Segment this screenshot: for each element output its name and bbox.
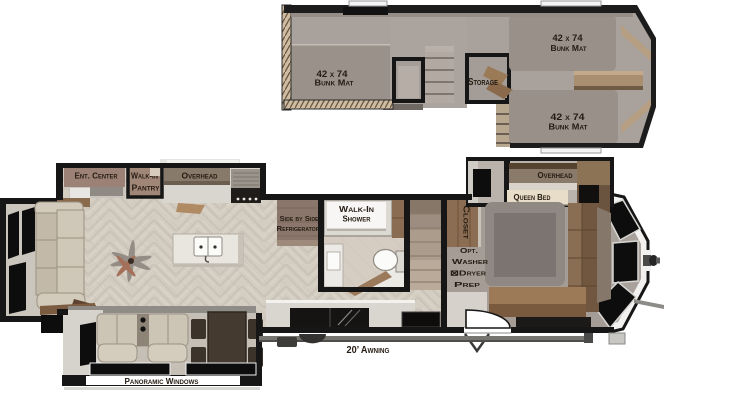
svg-text:Shower: Shower [343, 215, 372, 224]
svg-text:20’ Awning: 20’ Awning [347, 345, 390, 356]
svg-text:Prep: Prep [454, 280, 481, 289]
svg-text:Bunk Mat: Bunk Mat [315, 78, 354, 88]
svg-text:Storage: Storage [468, 77, 498, 88]
svg-text:Overhead: Overhead [182, 171, 219, 181]
svg-text:Ent. Center: Ent. Center [75, 171, 119, 181]
svg-text:Overhead: Overhead [538, 171, 574, 180]
svg-text:Opt.: Opt. [460, 246, 478, 255]
svg-text:⊠Dryer: ⊠Dryer [450, 269, 487, 278]
svg-text:Bunk Mat: Bunk Mat [551, 43, 587, 53]
svg-text:42 x 74: 42 x 74 [551, 112, 585, 122]
svg-text:Panoramic Windows: Panoramic Windows [125, 377, 199, 386]
svg-text:Closet: Closet [462, 205, 472, 239]
svg-text:Washer: Washer [452, 257, 489, 266]
svg-text:Side by Side: Side by Side [280, 214, 320, 223]
svg-text:Queen Bed: Queen Bed [514, 192, 552, 202]
svg-text:Pantry: Pantry [132, 184, 160, 193]
svg-text:42 x 74: 42 x 74 [553, 33, 583, 43]
svg-text:Bunk Mat: Bunk Mat [549, 122, 588, 132]
svg-text:Refrigerator: Refrigerator [277, 224, 320, 233]
svg-text:Walk-In: Walk-In [339, 205, 374, 214]
